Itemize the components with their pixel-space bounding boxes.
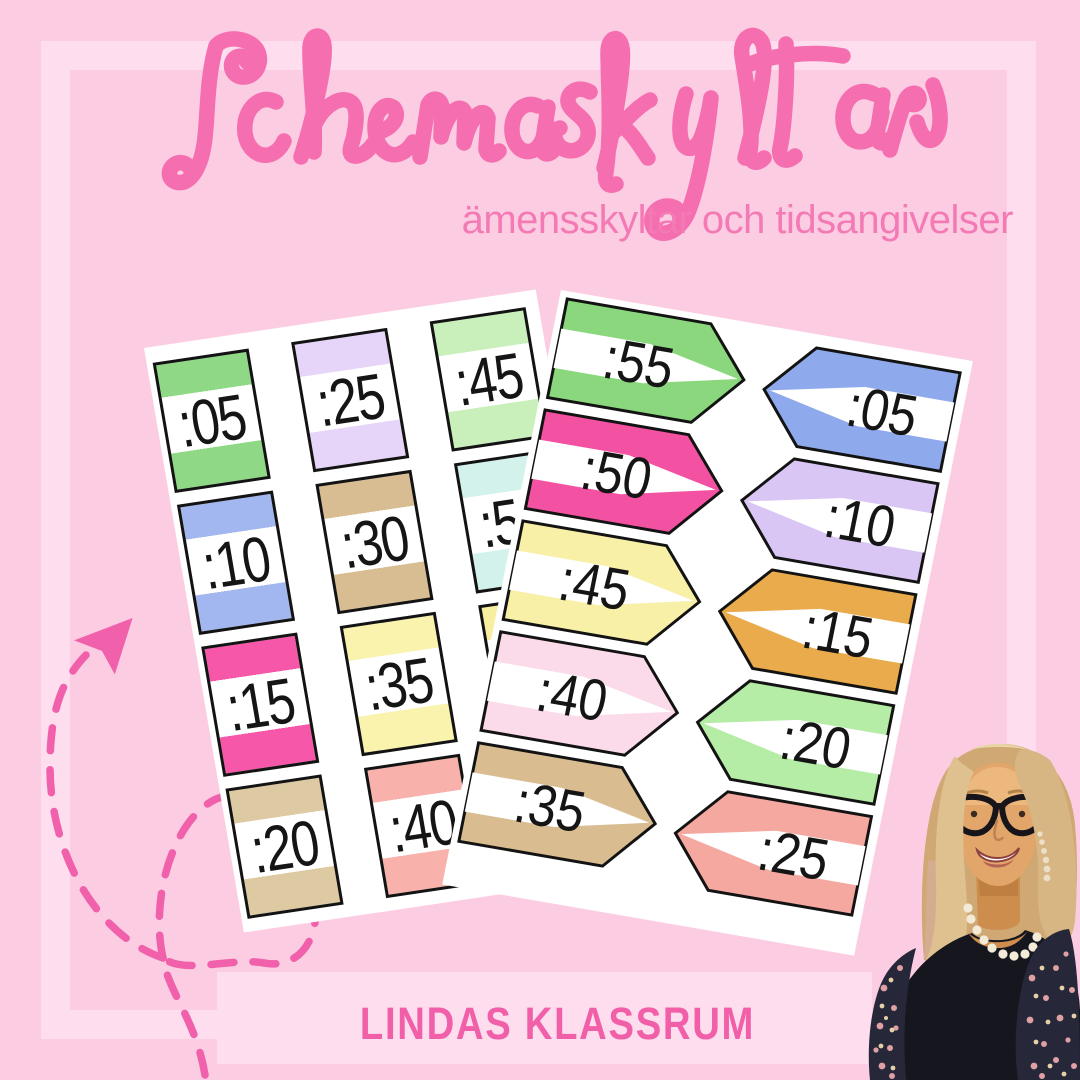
svg-text::20: :20	[775, 706, 857, 782]
svg-text::55: :55	[598, 325, 680, 401]
svg-text::05: :05	[841, 373, 923, 449]
svg-text::45: :45	[554, 547, 636, 623]
svg-text::50: :50	[576, 436, 658, 512]
svg-text::40: :40	[531, 658, 613, 734]
svg-text::35: :35	[509, 769, 591, 845]
svg-text::10: :10	[819, 484, 901, 560]
svg-text::15: :15	[797, 595, 879, 671]
svg-text::25: :25	[753, 817, 835, 893]
